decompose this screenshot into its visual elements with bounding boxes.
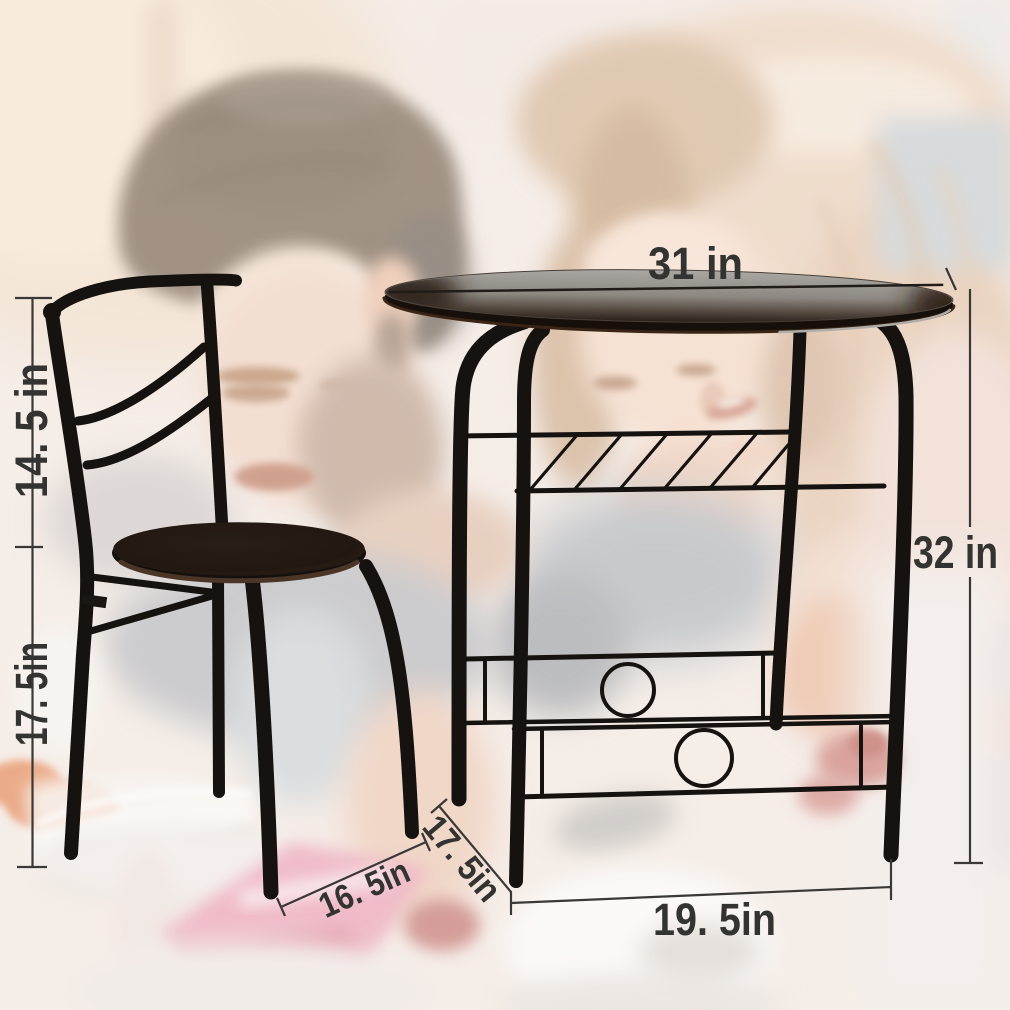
svg-text:31 in: 31 in (648, 238, 743, 289)
svg-text:14. 5 in: 14. 5 in (6, 363, 57, 498)
svg-text:32 in: 32 in (913, 527, 998, 578)
svg-text:19. 5in: 19. 5in (653, 894, 776, 945)
svg-text:17. 5in: 17. 5in (6, 642, 57, 746)
